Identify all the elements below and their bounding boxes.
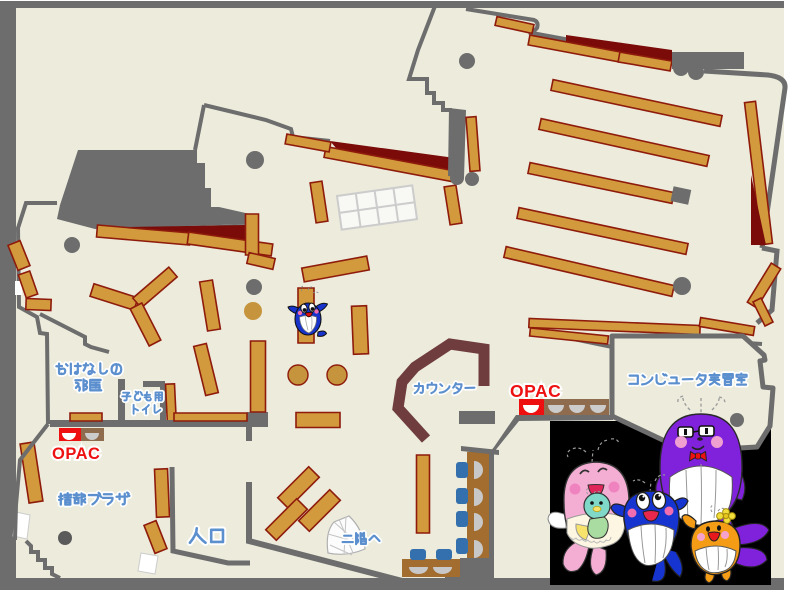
- svg-text:OPAC: OPAC: [510, 381, 561, 401]
- svg-text:OPAC: OPAC: [52, 445, 100, 463]
